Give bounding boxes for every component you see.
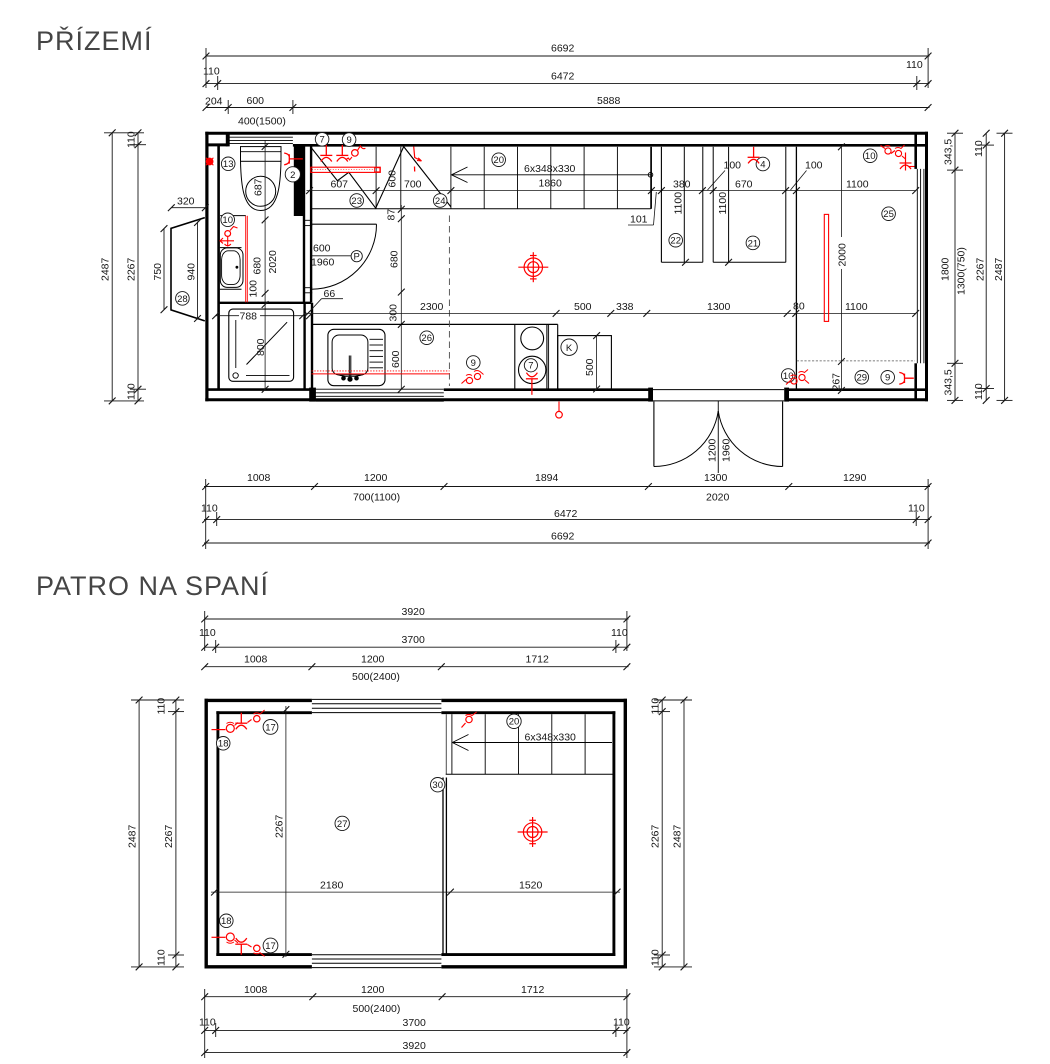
- svg-text:1712: 1712: [521, 984, 545, 996]
- svg-text:5888: 5888: [597, 95, 621, 107]
- svg-text:2300: 2300: [420, 301, 444, 313]
- svg-text:3920: 3920: [403, 1040, 427, 1052]
- svg-text:110: 110: [126, 383, 138, 400]
- svg-text:PATRO NA SPANÍ: PATRO NA SPANÍ: [36, 571, 269, 601]
- svg-text:100: 100: [724, 160, 742, 172]
- svg-text:1200: 1200: [361, 654, 385, 666]
- svg-text:3920: 3920: [402, 606, 426, 618]
- svg-text:1960: 1960: [721, 438, 733, 462]
- svg-text:600: 600: [386, 170, 398, 188]
- svg-text:17: 17: [265, 941, 276, 952]
- svg-text:20: 20: [509, 717, 520, 728]
- svg-text:680: 680: [388, 250, 400, 268]
- svg-text:110: 110: [199, 627, 216, 639]
- svg-text:100: 100: [247, 280, 259, 298]
- svg-text:100: 100: [805, 160, 823, 172]
- svg-text:700: 700: [404, 179, 422, 191]
- svg-text:6472: 6472: [551, 71, 575, 83]
- svg-text:1800: 1800: [940, 257, 952, 281]
- svg-text:750: 750: [152, 263, 164, 281]
- svg-text:1008: 1008: [247, 472, 271, 484]
- svg-text:300: 300: [388, 304, 400, 322]
- svg-text:6x348x330: 6x348x330: [524, 163, 576, 175]
- svg-text:18: 18: [218, 739, 229, 750]
- svg-text:2020: 2020: [267, 250, 279, 274]
- svg-text:6692: 6692: [551, 531, 575, 543]
- svg-text:1008: 1008: [244, 654, 268, 666]
- svg-text:788: 788: [240, 310, 258, 322]
- svg-text:3700: 3700: [403, 1017, 427, 1029]
- svg-text:80: 80: [793, 301, 805, 313]
- svg-text:2267: 2267: [273, 814, 285, 838]
- svg-text:2487: 2487: [126, 824, 138, 848]
- svg-text:2180: 2180: [320, 880, 344, 892]
- svg-text:1960: 1960: [311, 257, 335, 269]
- svg-text:20: 20: [493, 155, 504, 166]
- svg-text:110: 110: [650, 949, 662, 966]
- svg-text:110: 110: [908, 503, 925, 515]
- svg-text:110: 110: [156, 698, 168, 715]
- svg-text:607: 607: [331, 179, 349, 191]
- svg-text:21: 21: [748, 238, 759, 249]
- svg-text:110: 110: [156, 949, 168, 966]
- svg-text:10: 10: [783, 371, 794, 382]
- svg-text:343,5: 343,5: [943, 139, 955, 165]
- svg-text:110: 110: [650, 698, 662, 715]
- svg-text:800: 800: [255, 338, 267, 356]
- svg-text:1100: 1100: [717, 192, 729, 215]
- svg-text:110: 110: [906, 59, 923, 71]
- svg-text:29: 29: [857, 373, 868, 384]
- svg-text:101: 101: [630, 214, 648, 226]
- svg-text:25: 25: [883, 209, 894, 220]
- svg-text:2487: 2487: [993, 257, 1005, 281]
- svg-text:110: 110: [613, 1016, 630, 1028]
- svg-text:680: 680: [251, 257, 263, 275]
- svg-text:500(2400): 500(2400): [353, 1003, 401, 1015]
- svg-text:13: 13: [223, 159, 234, 170]
- svg-text:110: 110: [126, 131, 138, 148]
- svg-text:2020: 2020: [706, 492, 730, 504]
- svg-text:P: P: [354, 252, 360, 263]
- svg-text:1200: 1200: [364, 472, 388, 484]
- svg-text:2267: 2267: [650, 824, 662, 848]
- svg-text:1200: 1200: [361, 984, 385, 996]
- svg-text:6472: 6472: [554, 508, 578, 520]
- svg-text:9: 9: [346, 135, 351, 146]
- svg-text:1300: 1300: [704, 472, 728, 484]
- svg-text:500: 500: [584, 358, 596, 376]
- svg-text:28: 28: [177, 294, 188, 305]
- svg-text:30: 30: [432, 780, 443, 791]
- svg-text:1520: 1520: [519, 880, 543, 892]
- svg-text:940: 940: [185, 263, 197, 281]
- svg-text:24: 24: [435, 196, 446, 207]
- svg-text:687: 687: [253, 178, 265, 196]
- svg-text:10: 10: [865, 151, 876, 162]
- svg-text:700(1100): 700(1100): [353, 492, 400, 504]
- svg-text:600: 600: [247, 95, 265, 107]
- svg-text:110: 110: [973, 140, 985, 157]
- svg-text:500: 500: [574, 301, 592, 313]
- svg-text:27: 27: [337, 819, 348, 830]
- svg-text:7: 7: [319, 135, 324, 146]
- svg-text:6x348x330: 6x348x330: [525, 731, 577, 743]
- svg-text:17: 17: [265, 722, 276, 733]
- svg-text:1860: 1860: [539, 177, 563, 189]
- svg-text:343,5: 343,5: [943, 369, 955, 395]
- svg-text:6692: 6692: [551, 43, 575, 55]
- svg-text:1300(750): 1300(750): [956, 247, 968, 295]
- svg-text:320: 320: [177, 196, 195, 208]
- svg-text:1100: 1100: [845, 301, 868, 313]
- svg-text:110: 110: [199, 1016, 216, 1028]
- svg-text:110: 110: [203, 66, 220, 78]
- svg-text:22: 22: [670, 236, 681, 247]
- svg-text:18: 18: [221, 916, 232, 927]
- svg-text:10: 10: [222, 215, 233, 226]
- svg-text:2000: 2000: [836, 243, 848, 267]
- svg-text:3700: 3700: [402, 634, 426, 646]
- svg-text:7: 7: [528, 361, 533, 372]
- svg-text:400(1500): 400(1500): [238, 116, 286, 128]
- svg-text:1100: 1100: [673, 192, 685, 215]
- svg-text:26: 26: [421, 333, 432, 344]
- svg-text:1008: 1008: [244, 984, 268, 996]
- svg-text:9: 9: [471, 358, 476, 369]
- svg-text:1200: 1200: [707, 438, 719, 462]
- svg-text:338: 338: [616, 301, 634, 313]
- svg-text:1290: 1290: [843, 472, 867, 484]
- svg-text:2: 2: [290, 170, 295, 181]
- svg-text:500(2400): 500(2400): [352, 671, 400, 683]
- svg-text:267: 267: [830, 373, 842, 391]
- svg-text:204: 204: [205, 96, 223, 108]
- svg-text:1894: 1894: [535, 472, 559, 484]
- svg-text:PŘÍZEMÍ: PŘÍZEMÍ: [36, 25, 153, 56]
- svg-text:K: K: [566, 343, 573, 354]
- svg-text:2267: 2267: [126, 257, 138, 281]
- svg-text:9: 9: [885, 373, 890, 384]
- svg-text:2487: 2487: [100, 257, 112, 281]
- svg-text:670: 670: [735, 178, 753, 190]
- svg-text:87: 87: [385, 209, 397, 221]
- svg-text:2267: 2267: [163, 824, 175, 848]
- svg-text:1712: 1712: [526, 654, 550, 666]
- svg-text:23: 23: [351, 196, 362, 207]
- svg-text:1100: 1100: [846, 178, 869, 190]
- svg-text:2487: 2487: [672, 824, 684, 848]
- svg-text:110: 110: [611, 627, 628, 639]
- svg-text:66: 66: [324, 288, 336, 300]
- svg-text:600: 600: [390, 350, 402, 368]
- svg-text:2267: 2267: [975, 257, 987, 281]
- svg-text:1300: 1300: [707, 301, 731, 313]
- svg-text:380: 380: [673, 178, 691, 190]
- svg-text:110: 110: [973, 383, 985, 400]
- svg-text:4: 4: [760, 159, 765, 170]
- svg-text:110: 110: [201, 503, 218, 515]
- svg-text:600: 600: [313, 243, 331, 255]
